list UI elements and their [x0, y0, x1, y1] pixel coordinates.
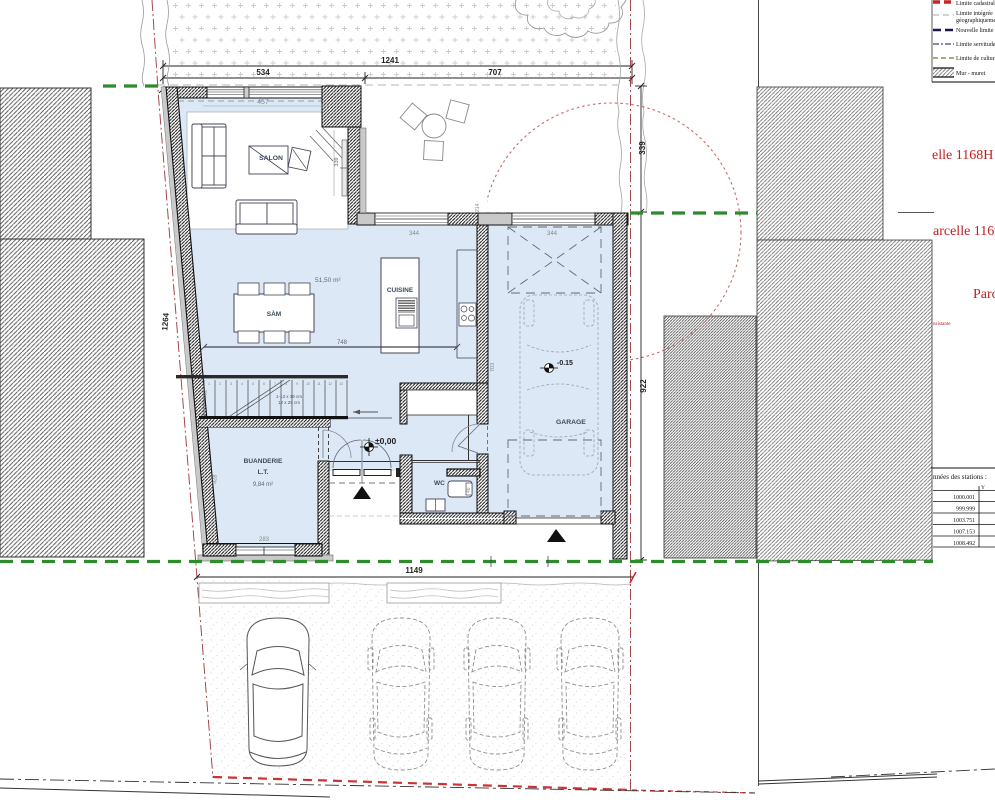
svg-text:-0.15: -0.15 [557, 360, 573, 367]
svg-text:1007.153: 1007.153 [953, 530, 975, 536]
svg-text:339: 339 [638, 141, 647, 155]
svg-text:707: 707 [488, 68, 502, 77]
svg-text:1: 1 [208, 382, 210, 386]
svg-text:999.999: 999.999 [956, 507, 975, 513]
svg-text:7: 7 [274, 382, 276, 386]
svg-text:922: 922 [639, 379, 648, 393]
svg-text:339: 339 [334, 157, 340, 166]
svg-text:344: 344 [547, 231, 558, 237]
svg-text:2: 2 [219, 382, 221, 386]
svg-text:géographiquement: géographiquement [956, 18, 995, 24]
svg-text:1241: 1241 [381, 56, 399, 65]
svg-text:8: 8 [285, 382, 287, 386]
svg-text:51,50 m²: 51,50 m² [315, 277, 341, 284]
svg-text:5: 5 [252, 382, 254, 386]
svg-text:Limite cadastral: Limite cadastral [956, 1, 995, 7]
svg-text:±0,00: ±0,00 [375, 436, 396, 446]
svg-text:Limite intégrée: Limite intégrée [956, 11, 993, 17]
svg-text:Parc: Parc [973, 287, 995, 302]
svg-text:6: 6 [263, 382, 265, 386]
svg-text:CUISINE: CUISINE [387, 287, 414, 294]
svg-text:SÀM: SÀM [267, 309, 281, 318]
svg-text:283: 283 [259, 537, 270, 543]
svg-text:11: 11 [317, 382, 321, 386]
svg-text:328: 328 [212, 474, 219, 484]
svg-text:46: 46 [466, 487, 472, 493]
svg-text:12: 12 [328, 382, 332, 386]
svg-text:arcelle 1169: arcelle 1169 [933, 224, 995, 239]
svg-text:1000.001: 1000.001 [953, 495, 975, 501]
svg-text:534: 534 [256, 68, 270, 77]
svg-text:1264: 1264 [160, 312, 171, 331]
svg-text:3: 3 [230, 382, 232, 386]
svg-text:344: 344 [409, 231, 420, 237]
svg-text:nnées des stations :: nnées des stations : [933, 473, 987, 481]
svg-text:9: 9 [296, 382, 298, 386]
svg-text:nsistante: nsistante [933, 322, 951, 327]
svg-text:elle 1168H: elle 1168H [932, 148, 993, 163]
svg-text:703: 703 [490, 363, 496, 372]
svg-text:4: 4 [241, 382, 243, 386]
svg-text:214: 214 [475, 203, 481, 212]
svg-text:1149: 1149 [405, 566, 423, 575]
svg-text:Nouvelle limite: Nouvelle limite [956, 28, 994, 34]
svg-text:WC: WC [434, 480, 445, 487]
svg-text:1008.492: 1008.492 [953, 541, 975, 547]
svg-text:L.T.: L.T. [258, 469, 269, 476]
svg-text:BUANDERIE: BUANDERIE [244, 458, 283, 465]
svg-text:GARAGE: GARAGE [556, 419, 586, 426]
svg-text:Mur - muret: Mur - muret [956, 71, 986, 77]
svg-text:Limite servitude: Limite servitude [956, 42, 995, 48]
svg-text:12 x 25 cm: 12 x 25 cm [278, 400, 300, 405]
svg-text:SALON: SALON [259, 155, 283, 162]
svg-text:10: 10 [306, 382, 310, 386]
svg-text:1003.751: 1003.751 [953, 518, 975, 524]
svg-text:748: 748 [337, 340, 348, 346]
svg-text:457: 457 [257, 99, 269, 106]
svg-text:Limite de culture: Limite de culture [956, 56, 995, 62]
svg-text:9,84 m²: 9,84 m² [253, 482, 273, 488]
svg-text:102: 102 [202, 389, 209, 399]
svg-text:1-13 x 19 cm: 1-13 x 19 cm [276, 394, 302, 399]
svg-text:13: 13 [339, 382, 343, 386]
